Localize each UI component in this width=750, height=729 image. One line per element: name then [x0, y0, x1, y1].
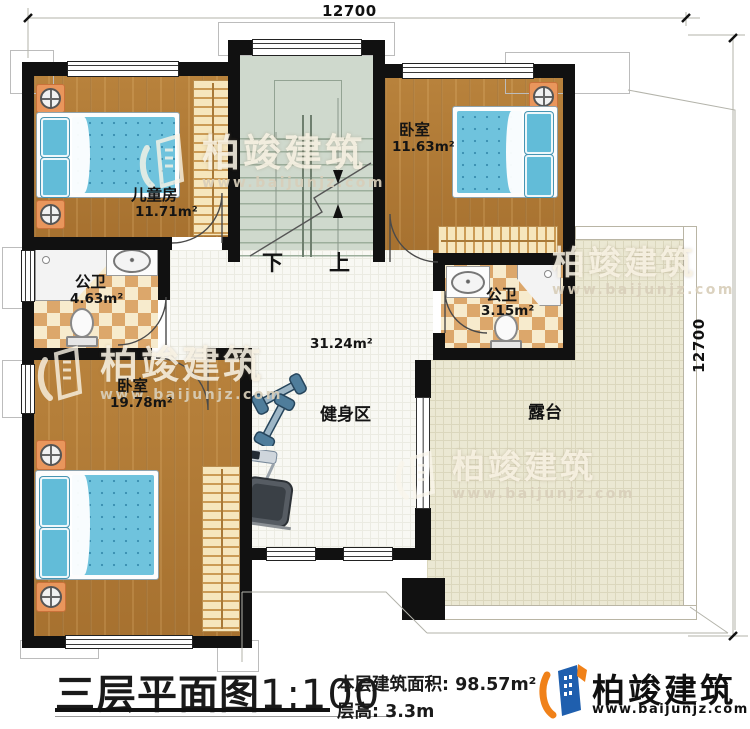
window	[22, 251, 34, 301]
brand-logo-icon	[538, 660, 590, 722]
wall	[433, 253, 575, 265]
room-label-terrace: 露台	[528, 404, 562, 423]
toilet-icon	[70, 308, 94, 338]
stair-down-label: 下	[262, 252, 283, 275]
lamp-icon	[40, 444, 62, 466]
window	[403, 64, 533, 78]
terrace-floor	[575, 240, 683, 605]
room-area-children: 11.71m²	[135, 205, 198, 220]
terrace-column	[402, 578, 445, 620]
window	[66, 636, 192, 648]
lamp-icon	[40, 586, 62, 608]
wall	[433, 348, 575, 360]
wall	[158, 250, 170, 300]
wall	[222, 237, 240, 250]
window	[344, 548, 392, 560]
wardrobe	[193, 80, 230, 236]
wall	[228, 40, 240, 262]
pillow	[525, 112, 553, 154]
wardrobe-rod	[221, 469, 223, 629]
room-label-bedroom2: 卧室	[399, 122, 430, 139]
wardrobe	[202, 466, 240, 632]
pillow	[525, 155, 553, 197]
wardrobe	[438, 226, 558, 254]
brand-url: www.baijunjz.com	[592, 702, 749, 717]
pillow	[41, 118, 69, 157]
terrace-parapet	[427, 605, 697, 620]
window	[253, 40, 361, 55]
wall	[433, 265, 445, 291]
room-area-bedroom2: 11.63m²	[392, 140, 455, 155]
wall	[22, 237, 172, 250]
bay-window-outline	[2, 247, 24, 309]
wardrobe-rod	[441, 240, 555, 242]
toilet-base	[66, 336, 98, 347]
dimension-top: 12700	[322, 2, 377, 20]
wall	[415, 508, 431, 560]
room-label-gym: 健身区	[320, 406, 371, 425]
shower-drain-icon	[544, 270, 552, 278]
window	[68, 62, 178, 76]
stair-up-label: 上	[329, 252, 350, 275]
floor-height-info: 层高: 3.3m	[337, 698, 434, 723]
pillow	[40, 528, 69, 578]
terrace-parapet	[575, 226, 697, 240]
room-label-bath2: 公卫	[486, 287, 517, 304]
sheet-fold	[70, 117, 90, 193]
floor-area-label: 本层建筑面积:	[337, 675, 449, 695]
bedside-table-lamp	[36, 200, 65, 229]
bedroom2-bed	[452, 106, 558, 198]
wardrobe-rod	[212, 83, 214, 233]
hall-area-label: 31.24m²	[310, 337, 373, 352]
stair-railing	[302, 115, 312, 257]
lamp-icon	[40, 204, 61, 225]
bay-window-outline	[2, 360, 24, 418]
bedroom1-bed	[35, 470, 159, 580]
room-label-children: 儿童房	[131, 187, 178, 204]
floor-height-value: 3.3m	[385, 702, 434, 722]
shower-drain-icon	[42, 256, 50, 264]
room-label-bath1: 公卫	[75, 274, 106, 291]
terrace-sliding-door	[417, 398, 429, 508]
sink-basin-icon	[451, 271, 485, 294]
wall	[240, 348, 252, 648]
room-label-bedroom1: 卧室	[117, 378, 148, 395]
terrace-parapet	[683, 226, 697, 620]
wall	[373, 40, 385, 262]
sink-basin-icon	[113, 249, 151, 273]
lamp-icon	[533, 86, 554, 107]
sheet-fold	[506, 111, 524, 193]
bedside-table-lamp	[36, 84, 65, 113]
floor-area-info: 本层建筑面积: 98.57m²	[337, 671, 536, 696]
room-area-bedroom1: 19.78m²	[110, 396, 173, 411]
window	[22, 365, 34, 413]
floor-height-label: 层高:	[337, 702, 379, 722]
pillow	[41, 158, 69, 197]
dimension-right: 12700	[690, 329, 708, 373]
terrace-floor	[427, 360, 575, 605]
title-underline-thick	[55, 708, 330, 712]
wall	[22, 348, 152, 360]
lamp-icon	[40, 88, 61, 109]
pillow	[40, 477, 69, 527]
room-area-bath1: 4.63m²	[70, 292, 123, 307]
floor-plan: 柏竣建筑 www.baijunjz.com 柏竣建筑 www.baijunjz.…	[0, 0, 750, 729]
bedside-table-lamp	[36, 582, 66, 612]
sheet-fold	[70, 475, 90, 575]
room-area-bath2: 3.15m²	[481, 304, 534, 319]
wall	[563, 64, 575, 360]
bedside-table-lamp	[36, 440, 66, 470]
wall	[415, 360, 431, 398]
floor-area-value: 98.57m²	[455, 675, 536, 695]
window	[267, 548, 315, 560]
